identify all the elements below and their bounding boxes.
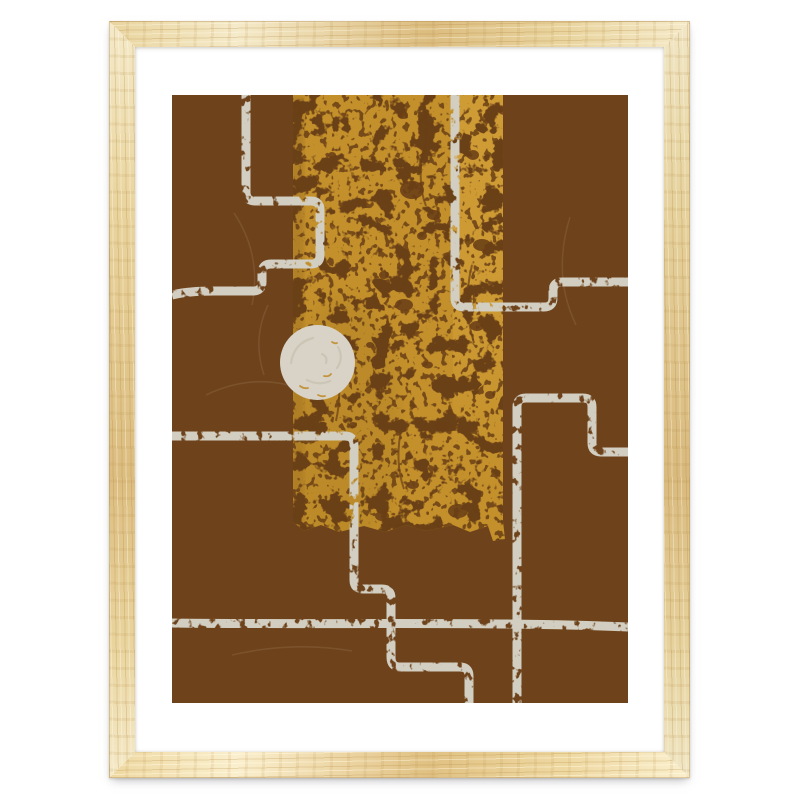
mat-board	[135, 47, 664, 752]
picture-frame	[109, 21, 690, 778]
frame-left-rail	[109, 21, 135, 778]
line-bottom-horizontal	[172, 623, 628, 627]
frame-right-rail	[664, 21, 690, 778]
artwork-canvas	[172, 95, 628, 703]
frame-bottom-rail	[109, 752, 690, 778]
frame-top-rail	[109, 21, 690, 47]
product-photo	[0, 0, 800, 800]
cream-circle	[280, 325, 355, 400]
